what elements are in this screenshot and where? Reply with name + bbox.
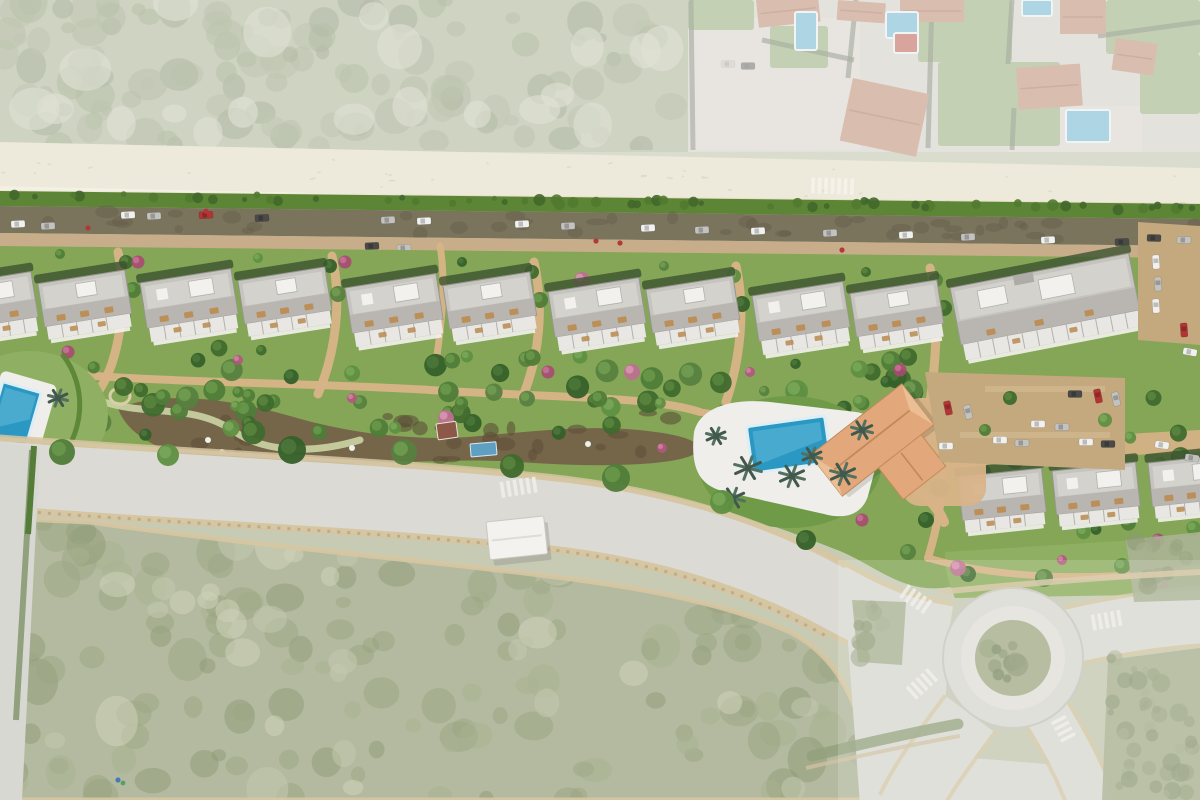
hedge-clump <box>1138 203 1148 213</box>
field-blob <box>493 707 508 724</box>
field-blob <box>782 639 797 652</box>
field-blob <box>445 624 465 646</box>
tree-icon <box>1125 433 1132 440</box>
field-blob <box>336 597 351 608</box>
skylight <box>564 297 577 310</box>
flower-dot <box>593 238 598 243</box>
skylight <box>156 288 169 301</box>
flower-bush-icon <box>348 394 353 399</box>
hedge-clump <box>313 196 319 202</box>
car-icon <box>417 217 431 225</box>
apartment-block <box>845 271 949 355</box>
tree-icon <box>604 418 614 428</box>
hedge-clump <box>466 198 472 204</box>
car-icon <box>41 222 55 230</box>
field-patch <box>332 740 356 767</box>
apartment-block <box>33 261 137 345</box>
field-patch <box>321 567 339 587</box>
parking-lane <box>985 386 1105 392</box>
tree-icon <box>593 392 602 401</box>
car-icon <box>1147 234 1161 241</box>
field-blob <box>462 683 482 701</box>
hedge-clump <box>385 197 392 204</box>
hedge-clump <box>9 190 19 200</box>
field-blob <box>226 756 248 775</box>
field-blob <box>612 562 628 581</box>
tree-icon <box>458 258 464 264</box>
tree-icon <box>712 492 725 505</box>
field-blob <box>362 637 379 652</box>
tree-icon <box>258 396 268 406</box>
flower-bush-icon <box>543 367 550 374</box>
tree-icon <box>852 362 862 372</box>
hedge-clump <box>688 197 698 207</box>
boulder-dot <box>349 445 355 451</box>
lane-texture <box>586 219 609 226</box>
lane-texture <box>607 213 617 225</box>
tree-icon <box>665 381 675 391</box>
tree-icon <box>760 387 766 393</box>
field-blob <box>723 625 761 663</box>
tree-icon <box>902 546 911 555</box>
tree-icon <box>285 371 293 379</box>
field-patch <box>343 780 363 795</box>
lane-texture <box>985 223 1002 232</box>
tree-icon <box>1004 392 1012 400</box>
penthouse <box>1096 470 1122 488</box>
tree-icon <box>313 426 322 435</box>
photo-fade-overlay <box>0 0 1200 203</box>
layer-top-fade <box>0 0 1200 203</box>
hedge-clump <box>698 200 703 205</box>
field-blob <box>364 677 400 708</box>
field-blob <box>677 734 699 755</box>
field-patch <box>96 696 138 747</box>
hedge-clump <box>1113 204 1124 215</box>
hedge-clump <box>266 196 274 204</box>
tree-icon <box>920 514 929 523</box>
field-blob <box>168 638 207 681</box>
car-icon <box>381 216 395 224</box>
penthouse <box>1192 462 1200 480</box>
hedge-clump <box>1079 202 1086 209</box>
hedge-clump <box>254 191 260 197</box>
terrace-furniture <box>1187 492 1197 499</box>
car-icon <box>823 229 837 237</box>
tree-icon <box>332 288 341 297</box>
field-patch <box>781 777 805 800</box>
lane-texture <box>168 210 183 218</box>
terrace-furniture <box>1114 498 1124 505</box>
tree-icon <box>446 354 455 363</box>
car-icon <box>11 220 25 228</box>
lane-texture <box>944 225 962 232</box>
aerial-site-plan <box>0 0 1200 800</box>
balcony-furniture <box>1176 506 1184 512</box>
tree-icon <box>144 395 157 408</box>
mulch-texture <box>441 456 461 462</box>
field-patch <box>152 577 176 600</box>
tree-icon <box>462 351 469 358</box>
boulder-dot <box>205 437 211 443</box>
hedge-clump <box>1047 199 1059 211</box>
lane-texture <box>850 216 866 223</box>
car-icon <box>255 214 269 222</box>
car-icon <box>1152 299 1160 313</box>
field-patch <box>508 639 527 660</box>
tree-icon <box>234 387 240 393</box>
lane-texture <box>242 227 255 234</box>
field-blob <box>36 656 65 684</box>
tree-icon <box>1147 392 1156 401</box>
skylight <box>361 293 374 306</box>
field-blob <box>696 633 717 652</box>
hedge-clump <box>807 202 817 212</box>
tree-icon <box>223 361 235 373</box>
lane-texture <box>400 211 413 221</box>
field-blob <box>516 677 539 694</box>
car-icon <box>939 443 953 450</box>
kiosk <box>436 421 458 440</box>
hedge-clump <box>591 197 601 207</box>
skylight <box>768 301 781 314</box>
lane-texture <box>667 211 678 224</box>
field-blob <box>199 658 215 673</box>
penthouse <box>480 283 502 300</box>
terrace-furniture <box>1020 504 1030 511</box>
blue-container <box>470 442 497 457</box>
hedge-clump <box>1031 203 1038 210</box>
field-blob <box>141 552 170 576</box>
tree-icon <box>568 378 581 391</box>
car-icon <box>641 224 655 232</box>
tree-icon <box>116 379 126 389</box>
hedge-clump <box>793 198 803 208</box>
car-icon <box>961 233 975 241</box>
flower-bush-icon <box>895 365 902 372</box>
field-patch <box>100 572 136 597</box>
tree-icon <box>862 268 868 274</box>
field-blob <box>646 692 666 708</box>
field-blob <box>79 646 104 668</box>
hedge-clump <box>921 204 929 212</box>
field-blob <box>369 741 385 759</box>
hedge-clump <box>399 195 405 201</box>
lane-texture <box>941 233 951 239</box>
tree-icon <box>244 423 257 436</box>
field-blob <box>184 696 202 718</box>
tree-icon <box>980 425 987 432</box>
hedge-clump <box>208 195 218 205</box>
skylight <box>1066 477 1078 489</box>
tree-icon <box>426 356 438 368</box>
tree-icon <box>56 250 62 256</box>
penthouse <box>188 278 214 298</box>
penthouse <box>275 278 297 295</box>
mulch-texture <box>382 413 393 420</box>
apartment-block <box>438 263 542 347</box>
field-blob <box>498 613 520 637</box>
terrace-furniture <box>974 509 984 516</box>
apartment-block <box>233 258 337 342</box>
hedge-clump <box>1060 201 1071 212</box>
car-icon <box>1152 255 1160 269</box>
person-dot <box>121 781 126 786</box>
hedge-clump <box>521 198 528 205</box>
field-blob <box>111 745 136 774</box>
mulch-texture <box>507 421 516 436</box>
skylight <box>1162 469 1174 481</box>
tree-icon <box>798 532 809 543</box>
field-patch <box>197 591 218 609</box>
tree-icon <box>390 423 397 430</box>
tree-icon <box>553 427 561 435</box>
field-blob <box>66 548 90 565</box>
mulch-texture <box>595 444 606 451</box>
flower-bush-icon <box>340 257 347 264</box>
hedge-clump <box>644 196 652 204</box>
white-canopy <box>486 516 548 560</box>
penthouse <box>887 291 909 308</box>
tree-icon <box>178 389 190 401</box>
lane-texture <box>720 229 732 235</box>
lane-texture <box>975 225 984 236</box>
hedge-clump <box>149 193 159 203</box>
hedge-clump <box>242 197 247 202</box>
hedge-clump <box>1014 199 1022 207</box>
field-blob <box>46 755 76 790</box>
tree-icon <box>502 456 515 469</box>
flower-bush-icon <box>857 515 864 522</box>
apartment-block <box>641 267 745 351</box>
car-icon <box>1015 440 1029 447</box>
terrace-furniture <box>997 506 1007 513</box>
lane-texture <box>223 211 242 224</box>
terrace-furniture <box>1164 495 1174 502</box>
tree-icon <box>656 399 662 405</box>
field-blob <box>135 768 171 794</box>
hedge-clump <box>972 200 981 209</box>
penthouse <box>683 287 705 304</box>
tree-icon <box>605 467 620 482</box>
penthouse <box>800 291 826 311</box>
hedge-clump <box>659 196 668 205</box>
field-patch <box>147 602 168 619</box>
tree-icon <box>372 421 382 431</box>
penthouse <box>596 287 622 307</box>
person-dot <box>115 777 120 782</box>
car-icon <box>1079 439 1093 446</box>
tree-icon <box>521 392 530 401</box>
tree-icon <box>1172 426 1181 435</box>
car-icon <box>515 220 529 228</box>
lane-texture <box>95 206 119 218</box>
tree-icon <box>487 385 497 395</box>
tree-icon <box>141 430 148 437</box>
apartment-block <box>748 272 856 359</box>
lane-texture <box>491 222 507 232</box>
boulder-dot <box>585 441 591 447</box>
car-icon <box>993 437 1007 444</box>
terrace-furniture <box>1091 500 1101 507</box>
scrub-dot <box>1135 543 1152 560</box>
tree-icon <box>440 384 451 395</box>
tree-icon <box>791 360 797 366</box>
field-blob <box>442 735 459 752</box>
car-icon <box>365 242 379 250</box>
hedge-clump <box>633 200 641 208</box>
field-blob <box>573 762 594 777</box>
tree-icon <box>1099 414 1107 422</box>
penthouse <box>1002 476 1028 494</box>
terrace-furniture <box>1068 503 1078 510</box>
field-blob <box>405 718 420 732</box>
field-blob <box>281 658 304 675</box>
field-blob <box>422 688 456 723</box>
flower-bush-icon <box>234 356 239 361</box>
lane-texture <box>886 229 899 240</box>
tree-icon <box>281 439 296 454</box>
car-icon <box>1055 424 1069 431</box>
apartment-block <box>136 259 244 346</box>
car-icon <box>1041 236 1055 244</box>
apartment-block <box>544 268 652 355</box>
tree-icon <box>883 353 894 364</box>
car-icon <box>561 222 575 230</box>
penthouse <box>393 283 419 303</box>
car-icon <box>1154 277 1162 291</box>
field-patch <box>619 661 648 686</box>
tree-icon <box>243 390 250 397</box>
tree-icon <box>257 346 263 352</box>
hedge-clump <box>551 194 563 206</box>
car-icon <box>751 227 765 235</box>
tree-icon <box>135 384 143 392</box>
tree-icon <box>712 374 724 386</box>
hedge-clump <box>911 201 919 209</box>
field-patch <box>225 638 260 666</box>
tree-icon <box>231 402 237 408</box>
hedge-clump <box>1189 205 1195 211</box>
field-blob <box>460 722 493 748</box>
penthouse <box>75 281 97 298</box>
field-patch <box>216 609 247 639</box>
hedge-clump <box>502 199 508 205</box>
mulch-texture <box>568 425 587 434</box>
junction-fade-overlay <box>838 560 1200 800</box>
tree-icon <box>526 351 535 360</box>
field-blob <box>461 596 484 615</box>
field-patch <box>534 688 559 717</box>
car-icon <box>899 231 913 239</box>
tree-icon <box>787 382 800 395</box>
flower-bush-icon <box>133 257 140 264</box>
field-patch <box>45 732 66 748</box>
car-icon <box>1180 323 1188 337</box>
field-blob <box>788 737 827 782</box>
hedge-clump <box>192 192 203 203</box>
flower-bush-icon <box>658 444 663 449</box>
hedge-clump <box>680 200 689 209</box>
hedge-clump <box>851 199 862 210</box>
tree-icon <box>639 393 651 405</box>
tree-icon <box>882 377 889 384</box>
tree-icon <box>224 421 233 430</box>
balcony-furniture <box>1107 512 1115 518</box>
hedge-clump <box>767 203 774 210</box>
flower-dot <box>839 247 844 252</box>
field-blob <box>748 722 780 760</box>
lane-texture <box>913 222 929 234</box>
lane-texture <box>775 230 791 237</box>
flower-bush-icon <box>626 366 634 374</box>
mulch-texture <box>660 412 681 425</box>
mulch-texture <box>635 445 646 458</box>
lane-texture <box>834 215 851 227</box>
tree-icon <box>159 446 171 458</box>
tree-icon <box>52 442 66 456</box>
tree-icon <box>212 341 221 350</box>
hedge-clump <box>32 194 38 200</box>
tree-icon <box>254 254 260 260</box>
field-blob <box>344 701 361 718</box>
tree-icon <box>643 369 655 381</box>
hedge-clump <box>121 191 127 197</box>
field-blob <box>326 619 354 639</box>
lane-texture <box>450 221 468 233</box>
lane-texture <box>174 225 183 233</box>
hedge-clump <box>412 198 420 206</box>
tree-icon <box>681 365 694 378</box>
tree-icon <box>156 391 165 400</box>
hedge-clump <box>273 196 283 206</box>
balcony-furniture <box>1013 518 1021 524</box>
hedge-clump <box>70 192 76 198</box>
field-blob <box>279 750 299 770</box>
balcony-furniture <box>986 520 994 526</box>
tree-icon <box>456 398 463 405</box>
field-blob <box>224 699 254 733</box>
field-patch <box>330 664 347 682</box>
flower-bush-icon <box>440 412 448 420</box>
tree-icon <box>493 366 503 376</box>
car-icon <box>147 212 161 220</box>
car-icon <box>1068 391 1082 398</box>
flower-dot <box>203 208 208 213</box>
field-blob <box>212 749 226 761</box>
tree-icon <box>192 354 200 362</box>
car-icon <box>1031 421 1045 428</box>
flower-dot <box>85 225 90 230</box>
car-icon <box>1101 441 1115 448</box>
tree-icon <box>89 363 96 370</box>
hedge-clump <box>567 197 578 208</box>
field-patch <box>791 697 819 717</box>
tree-icon <box>1188 522 1196 530</box>
lane-texture <box>1020 223 1029 231</box>
hedge-clump <box>868 197 880 209</box>
layer-roundabout <box>806 532 1200 800</box>
aerial-screenshot <box>0 0 1200 800</box>
hedge-clump <box>492 196 497 201</box>
tree-icon <box>598 362 611 375</box>
tree-icon <box>901 350 911 360</box>
hedge-clump <box>449 200 456 207</box>
car-icon <box>1177 236 1191 243</box>
tree-icon <box>534 294 543 303</box>
field-blob <box>642 624 680 668</box>
tree-icon <box>206 382 218 394</box>
